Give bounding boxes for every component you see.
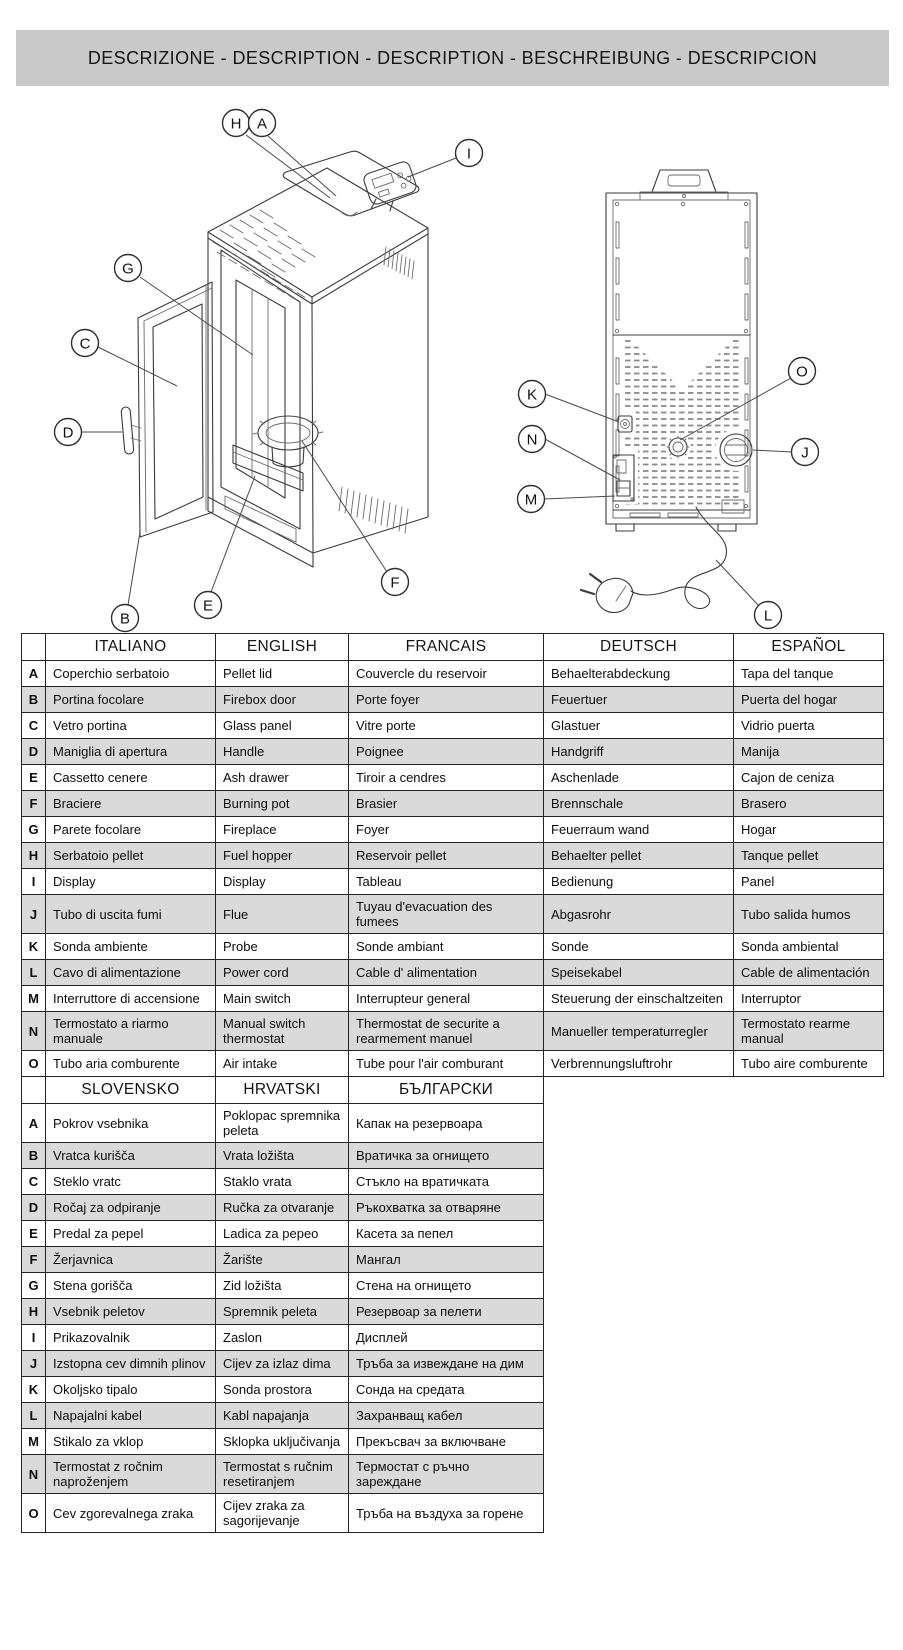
table-cell: Сонда на средата: [349, 1377, 544, 1403]
table1-body: ACoperchio serbatoioPellet lidCouvercle …: [22, 661, 884, 1077]
row-letter: F: [22, 791, 46, 817]
table-row: HVsebnik peletovSpremnik peletaРезервоар…: [22, 1299, 544, 1325]
row-letter: G: [22, 817, 46, 843]
table-cell: Handle: [216, 739, 349, 765]
callout-leader-J: [753, 450, 792, 452]
table-cell: Handgriff: [544, 739, 734, 765]
table-cell: Pellet lid: [216, 661, 349, 687]
table-cell: Pokrov vsebnika: [46, 1104, 216, 1143]
table-cell: Sonda ambiente: [46, 934, 216, 960]
callout-label-K: K: [527, 387, 537, 404]
table-row: CVetro portinaGlass panelVitre porteGlas…: [22, 713, 884, 739]
table-cell: Predal za pepel: [46, 1221, 216, 1247]
row-letter: G: [22, 1273, 46, 1299]
table-cell: Стъкло на вратичката: [349, 1169, 544, 1195]
table-cell: Прекъсвач за включване: [349, 1429, 544, 1455]
callout-circle-N: [519, 426, 546, 453]
row-letter: N: [22, 1455, 46, 1494]
table-cell: Cajon de ceniza: [734, 765, 884, 791]
callout-circle-I: [456, 140, 483, 167]
translation-table-main: ITALIANOENGLISHFRANCAISDEUTSCHESPAÑOL AC…: [21, 633, 884, 1077]
row-letter: J: [22, 895, 46, 934]
table-row: BPortina focolareFirebox doorPorte foyer…: [22, 687, 884, 713]
table-cell: Термостат с ръчно зареждане: [349, 1455, 544, 1494]
table-cell: Speisekabel: [544, 960, 734, 986]
table-cell: Tuyau d'evacuation des fumees: [349, 895, 544, 934]
table-cell: Foyer: [349, 817, 544, 843]
table-cell: Ladica za pepeo: [216, 1221, 349, 1247]
table-cell: Poklopac spremnika peleta: [216, 1104, 349, 1143]
row-letter: O: [22, 1494, 46, 1533]
table-cell: Termostat s ručnim resetiranjem: [216, 1455, 349, 1494]
callout-circle-G: [115, 255, 142, 282]
table-cell: Spremnik peleta: [216, 1299, 349, 1325]
table-cell: Tanque pellet: [734, 843, 884, 869]
table-cell: Interruttore di accensione: [46, 986, 216, 1012]
table-row: GParete focolareFireplaceFoyerFeuerraum …: [22, 817, 884, 843]
callout-circle-K: [519, 381, 546, 408]
table-cell: Vratca kurišča: [46, 1143, 216, 1169]
row-letter: N: [22, 1012, 46, 1051]
table-cell: Дисплей: [349, 1325, 544, 1351]
callout-circle-F: [382, 569, 409, 596]
column-header: FRANCAIS: [349, 634, 544, 661]
translation-tables: ITALIANOENGLISHFRANCAISDEUTSCHESPAÑOL AC…: [21, 633, 883, 1533]
table-cell: Vsebnik peletov: [46, 1299, 216, 1325]
table-cell: Main switch: [216, 986, 349, 1012]
callout-leader-O: [680, 378, 791, 440]
table-cell: Probe: [216, 934, 349, 960]
table-cell: Капак на резервоара: [349, 1104, 544, 1143]
row-letter: M: [22, 986, 46, 1012]
table-cell: Stena gorišča: [46, 1273, 216, 1299]
table-row: ACoperchio serbatoioPellet lidCouvercle …: [22, 661, 884, 687]
callout-leader-H: [246, 135, 330, 198]
table-row: DRočaj za odpiranjeRučka za otvaranjeРък…: [22, 1195, 544, 1221]
row-letter: K: [22, 934, 46, 960]
table-cell: Ash drawer: [216, 765, 349, 791]
row-letter: E: [22, 765, 46, 791]
callout-leader-F: [302, 441, 387, 572]
page-title-banner: DESCRIZIONE - DESCRIPTION - DESCRIPTION …: [16, 30, 889, 86]
column-header: HRVATSKI: [216, 1077, 349, 1104]
table-cell: Izstopna cev dimnih plinov: [46, 1351, 216, 1377]
table-cell: Zid ložišta: [216, 1273, 349, 1299]
table-cell: Display: [46, 869, 216, 895]
table-row: APokrov vsebnikaPoklopac spremnika pelet…: [22, 1104, 544, 1143]
table-row: CSteklo vratcStaklo vrataСтъкло на врати…: [22, 1169, 544, 1195]
table-row: JIzstopna cev dimnih plinovCijev za izla…: [22, 1351, 544, 1377]
table-cell: Vidrio puerta: [734, 713, 884, 739]
table-row: MStikalo za vklopSklopka uključivanjaПре…: [22, 1429, 544, 1455]
header-row: ITALIANOENGLISHFRANCAISDEUTSCHESPAÑOL: [22, 634, 884, 661]
table-cell: Parete focolare: [46, 817, 216, 843]
table-cell: Hogar: [734, 817, 884, 843]
table2-body: APokrov vsebnikaPoklopac spremnika pelet…: [22, 1104, 544, 1533]
table-row: LCavo di alimentazionePower cordCable d'…: [22, 960, 884, 986]
table-cell: Ručka za otvaranje: [216, 1195, 349, 1221]
table-cell: Cev zgorevalnega zraka: [46, 1494, 216, 1533]
table-cell: Air intake: [216, 1051, 349, 1077]
table-cell: Portina focolare: [46, 687, 216, 713]
table-cell: Porte foyer: [349, 687, 544, 713]
table-cell: Tube pour l'air comburant: [349, 1051, 544, 1077]
table-cell: Tapa del tanque: [734, 661, 884, 687]
callout-label-O: O: [796, 364, 808, 381]
callout-circle-E: [195, 592, 222, 619]
table-cell: Manueller temperaturregler: [544, 1012, 734, 1051]
table-row: FBraciereBurning potBrasierBrennschaleBr…: [22, 791, 884, 817]
table-row: DManiglia di aperturaHandlePoigneeHandgr…: [22, 739, 884, 765]
row-letter: H: [22, 843, 46, 869]
row-letter: O: [22, 1051, 46, 1077]
table-cell: Glastuer: [544, 713, 734, 739]
column-header: SLOVENSKO: [46, 1077, 216, 1104]
table-cell: Vetro portina: [46, 713, 216, 739]
column-header: ESPAÑOL: [734, 634, 884, 661]
table-cell: Ročaj za odpiranje: [46, 1195, 216, 1221]
callout-circle-O: [789, 358, 816, 385]
table-cell: Manual switch thermostat: [216, 1012, 349, 1051]
callout-leader-K: [545, 394, 619, 422]
callout-circle-L: [755, 602, 782, 629]
row-letter: H: [22, 1299, 46, 1325]
table-cell: Cavo di alimentazione: [46, 960, 216, 986]
callout-label-H: H: [231, 116, 242, 133]
table-row: NTermostato a riarmo manualeManual switc…: [22, 1012, 884, 1051]
table-cell: Interruptor: [734, 986, 884, 1012]
table-cell: Резервоар за пелети: [349, 1299, 544, 1325]
callout-label-D: D: [63, 425, 74, 442]
table-cell: Prikazovalnik: [46, 1325, 216, 1351]
callout-leader-N: [545, 439, 620, 480]
row-letter: C: [22, 713, 46, 739]
table-cell: Stikalo za vklop: [46, 1429, 216, 1455]
translation-table-secondary: SLOVENSKOHRVATSKIБЪЛГАРСКИ APokrov vsebn…: [21, 1076, 544, 1533]
table-cell: Sklopka uključivanja: [216, 1429, 349, 1455]
callout-label-B: B: [120, 611, 130, 628]
table-cell: Вратичка за огнището: [349, 1143, 544, 1169]
column-header: ITALIANO: [46, 634, 216, 661]
table-row: KOkoljsko tipaloSonda prostoraСонда на с…: [22, 1377, 544, 1403]
page-title: DESCRIZIONE - DESCRIPTION - DESCRIPTION …: [88, 48, 817, 69]
callout-label-J: J: [801, 445, 809, 462]
table-cell: Cable d' alimentation: [349, 960, 544, 986]
table-row: IDisplayDisplayTableauBedienungPanel: [22, 869, 884, 895]
row-letter: M: [22, 1429, 46, 1455]
column-header: [22, 634, 46, 661]
table-cell: Maniglia di apertura: [46, 739, 216, 765]
table-row: ECassetto cenereAsh drawerTiroir a cendr…: [22, 765, 884, 791]
row-letter: C: [22, 1169, 46, 1195]
callout-circle-C: [72, 330, 99, 357]
row-letter: A: [22, 1104, 46, 1143]
table-cell: Bedienung: [544, 869, 734, 895]
row-letter: F: [22, 1247, 46, 1273]
table-cell: Manija: [734, 739, 884, 765]
table-cell: Staklo vrata: [216, 1169, 349, 1195]
table-cell: Termostato rearme manual: [734, 1012, 884, 1051]
callout-circle-B: [112, 605, 139, 632]
table-cell: Burning pot: [216, 791, 349, 817]
table-cell: Couvercle du reservoir: [349, 661, 544, 687]
callout-label-N: N: [527, 432, 538, 449]
callout-leader-B: [128, 532, 140, 605]
row-letter: B: [22, 1143, 46, 1169]
table-cell: Behaelter pellet: [544, 843, 734, 869]
table-row: NTermostat z ročnim naproženjemTermostat…: [22, 1455, 544, 1494]
row-letter: I: [22, 1325, 46, 1351]
callout-leader-M: [544, 496, 615, 499]
table-row: LNapajalni kabelKabl napajanjaЗахранващ …: [22, 1403, 544, 1429]
table-cell: Fireplace: [216, 817, 349, 843]
table-cell: Vrata ložišta: [216, 1143, 349, 1169]
row-letter: D: [22, 1195, 46, 1221]
table-row: GStena goriščaZid ložištaСтена на огнище…: [22, 1273, 544, 1299]
table-cell: Aschenlade: [544, 765, 734, 791]
callout-circle-H: [223, 110, 250, 137]
table-row: OTubo aria comburenteAir intakeTube pour…: [22, 1051, 884, 1077]
table-cell: Tubo aria comburente: [46, 1051, 216, 1077]
table-cell: Tiroir a cendres: [349, 765, 544, 791]
table-cell: Tubo salida humos: [734, 895, 884, 934]
table-cell: Brennschale: [544, 791, 734, 817]
table-cell: Tubo aire comburente: [734, 1051, 884, 1077]
stove-front-diagram: HAIGCDBEF: [40, 95, 490, 635]
table-cell: Napajalni kabel: [46, 1403, 216, 1429]
table-row: MInterruttore di accensioneMain switchIn…: [22, 986, 884, 1012]
row-letter: K: [22, 1377, 46, 1403]
table-cell: Power cord: [216, 960, 349, 986]
table-cell: Fuel hopper: [216, 843, 349, 869]
callout-leader-G: [140, 277, 253, 355]
row-letter: A: [22, 661, 46, 687]
table-cell: Poignee: [349, 739, 544, 765]
row-letter: E: [22, 1221, 46, 1247]
callout-leader-L: [716, 560, 759, 606]
stove-rear-diagram: KNMOJL: [480, 130, 890, 630]
table-cell: Interrupteur general: [349, 986, 544, 1012]
table-cell: Feuerraum wand: [544, 817, 734, 843]
column-header: БЪЛГАРСКИ: [349, 1077, 544, 1104]
callout-label-M: M: [525, 492, 538, 509]
table-cell: Flue: [216, 895, 349, 934]
table-cell: Thermostat de securite a rearmement manu…: [349, 1012, 544, 1051]
row-letter: L: [22, 960, 46, 986]
callout-label-A: A: [257, 116, 267, 133]
table-cell: Firebox door: [216, 687, 349, 713]
table-cell: Puerta del hogar: [734, 687, 884, 713]
table-cell: Sonda ambiental: [734, 934, 884, 960]
table-cell: Vitre porte: [349, 713, 544, 739]
table-row: HSerbatoio pelletFuel hopperReservoir pe…: [22, 843, 884, 869]
table-cell: Касета за пепел: [349, 1221, 544, 1247]
callout-circle-M: [518, 486, 545, 513]
table-cell: Behaelterabdeckung: [544, 661, 734, 687]
callout-leader-I: [408, 158, 456, 177]
table-cell: Žarište: [216, 1247, 349, 1273]
column-header: ENGLISH: [216, 634, 349, 661]
table-cell: Захранващ кабел: [349, 1403, 544, 1429]
table-row: BVratca kuriščaVrata ložištaВратичка за …: [22, 1143, 544, 1169]
row-letter: I: [22, 869, 46, 895]
table1-head: ITALIANOENGLISHFRANCAISDEUTSCHESPAÑOL: [22, 634, 884, 661]
callout-leader-C: [98, 347, 177, 386]
callout-circle-J: [792, 439, 819, 466]
callout-label-L: L: [764, 608, 772, 625]
table-cell: Мангал: [349, 1247, 544, 1273]
table-cell: Display: [216, 869, 349, 895]
row-letter: L: [22, 1403, 46, 1429]
table-cell: Стена на огнището: [349, 1273, 544, 1299]
manual-page: DESCRIZIONE - DESCRIPTION - DESCRIPTION …: [0, 0, 903, 1650]
table-cell: Cijev zraka za sagorijevanje: [216, 1494, 349, 1533]
table-cell: Abgasrohr: [544, 895, 734, 934]
table-cell: Sonda prostora: [216, 1377, 349, 1403]
table-row: OCev zgorevalnega zrakaCijev zraka za sa…: [22, 1494, 544, 1533]
callout-label-I: I: [467, 146, 471, 163]
table-cell: Žerjavnica: [46, 1247, 216, 1273]
table-row: JTubo di uscita fumiFlueTuyau d'evacuati…: [22, 895, 884, 934]
table-cell: Panel: [734, 869, 884, 895]
table-cell: Тръба на въздуха за горене: [349, 1494, 544, 1533]
table-cell: Okoljsko tipalo: [46, 1377, 216, 1403]
row-letter: J: [22, 1351, 46, 1377]
column-header: DEUTSCH: [544, 634, 734, 661]
table-cell: Ръкохватка за отваряне: [349, 1195, 544, 1221]
table-cell: Glass panel: [216, 713, 349, 739]
table-cell: Тръба за извеждане на дим: [349, 1351, 544, 1377]
table-cell: Reservoir pellet: [349, 843, 544, 869]
table-row: IPrikazovalnikZaslonДисплей: [22, 1325, 544, 1351]
table-row: EPredal za pepelLadica za pepeoКасета за…: [22, 1221, 544, 1247]
table-row: FŽerjavnicaŽarišteМангал: [22, 1247, 544, 1273]
callout-circle-A: [249, 110, 276, 137]
header-row: SLOVENSKOHRVATSKIБЪЛГАРСКИ: [22, 1077, 544, 1104]
table-cell: Tubo di uscita fumi: [46, 895, 216, 934]
table-cell: Kabl napajanja: [216, 1403, 349, 1429]
row-letter: B: [22, 687, 46, 713]
table-cell: Brasier: [349, 791, 544, 817]
callout-leader-A: [268, 136, 336, 196]
callout-circle-D: [55, 419, 82, 446]
table-cell: Coperchio serbatoio: [46, 661, 216, 687]
table-cell: Sonde: [544, 934, 734, 960]
callout-label-F: F: [390, 575, 399, 592]
table-cell: Termostato a riarmo manuale: [46, 1012, 216, 1051]
row-letter: D: [22, 739, 46, 765]
table-cell: Cassetto cenere: [46, 765, 216, 791]
table2-head: SLOVENSKOHRVATSKIБЪЛГАРСКИ: [22, 1077, 544, 1104]
table-cell: Verbrennungsluftrohr: [544, 1051, 734, 1077]
table-cell: Termostat z ročnim naproženjem: [46, 1455, 216, 1494]
table-cell: Brasero: [734, 791, 884, 817]
table-cell: Steklo vratc: [46, 1169, 216, 1195]
callout-label-G: G: [122, 261, 134, 278]
table-cell: Feuertuer: [544, 687, 734, 713]
table-cell: Zaslon: [216, 1325, 349, 1351]
callout-label-E: E: [203, 598, 213, 615]
table-row: KSonda ambienteProbeSonde ambiantSondeSo…: [22, 934, 884, 960]
table-cell: Tableau: [349, 869, 544, 895]
table-cell: Braciere: [46, 791, 216, 817]
callout-label-C: C: [80, 336, 91, 353]
table-cell: Cable de alimentación: [734, 960, 884, 986]
table-cell: Serbatoio pellet: [46, 843, 216, 869]
table-cell: Cijev za izlaz dima: [216, 1351, 349, 1377]
callout-leader-E: [211, 476, 255, 592]
column-header: [22, 1077, 46, 1104]
table-cell: Sonde ambiant: [349, 934, 544, 960]
table-cell: Steuerung der einschaltzeiten: [544, 986, 734, 1012]
